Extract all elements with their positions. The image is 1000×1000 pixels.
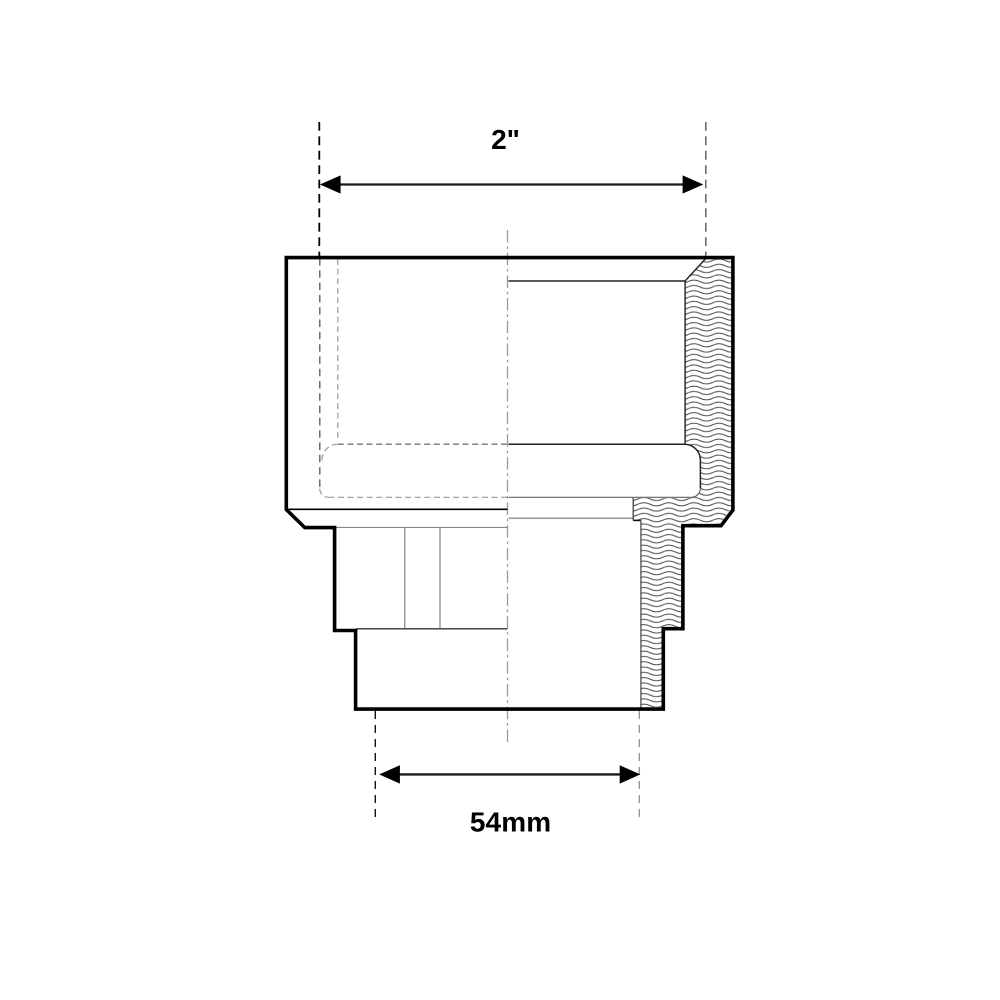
svg-text:2": 2" — [491, 124, 520, 155]
svg-text:54mm: 54mm — [470, 807, 552, 838]
